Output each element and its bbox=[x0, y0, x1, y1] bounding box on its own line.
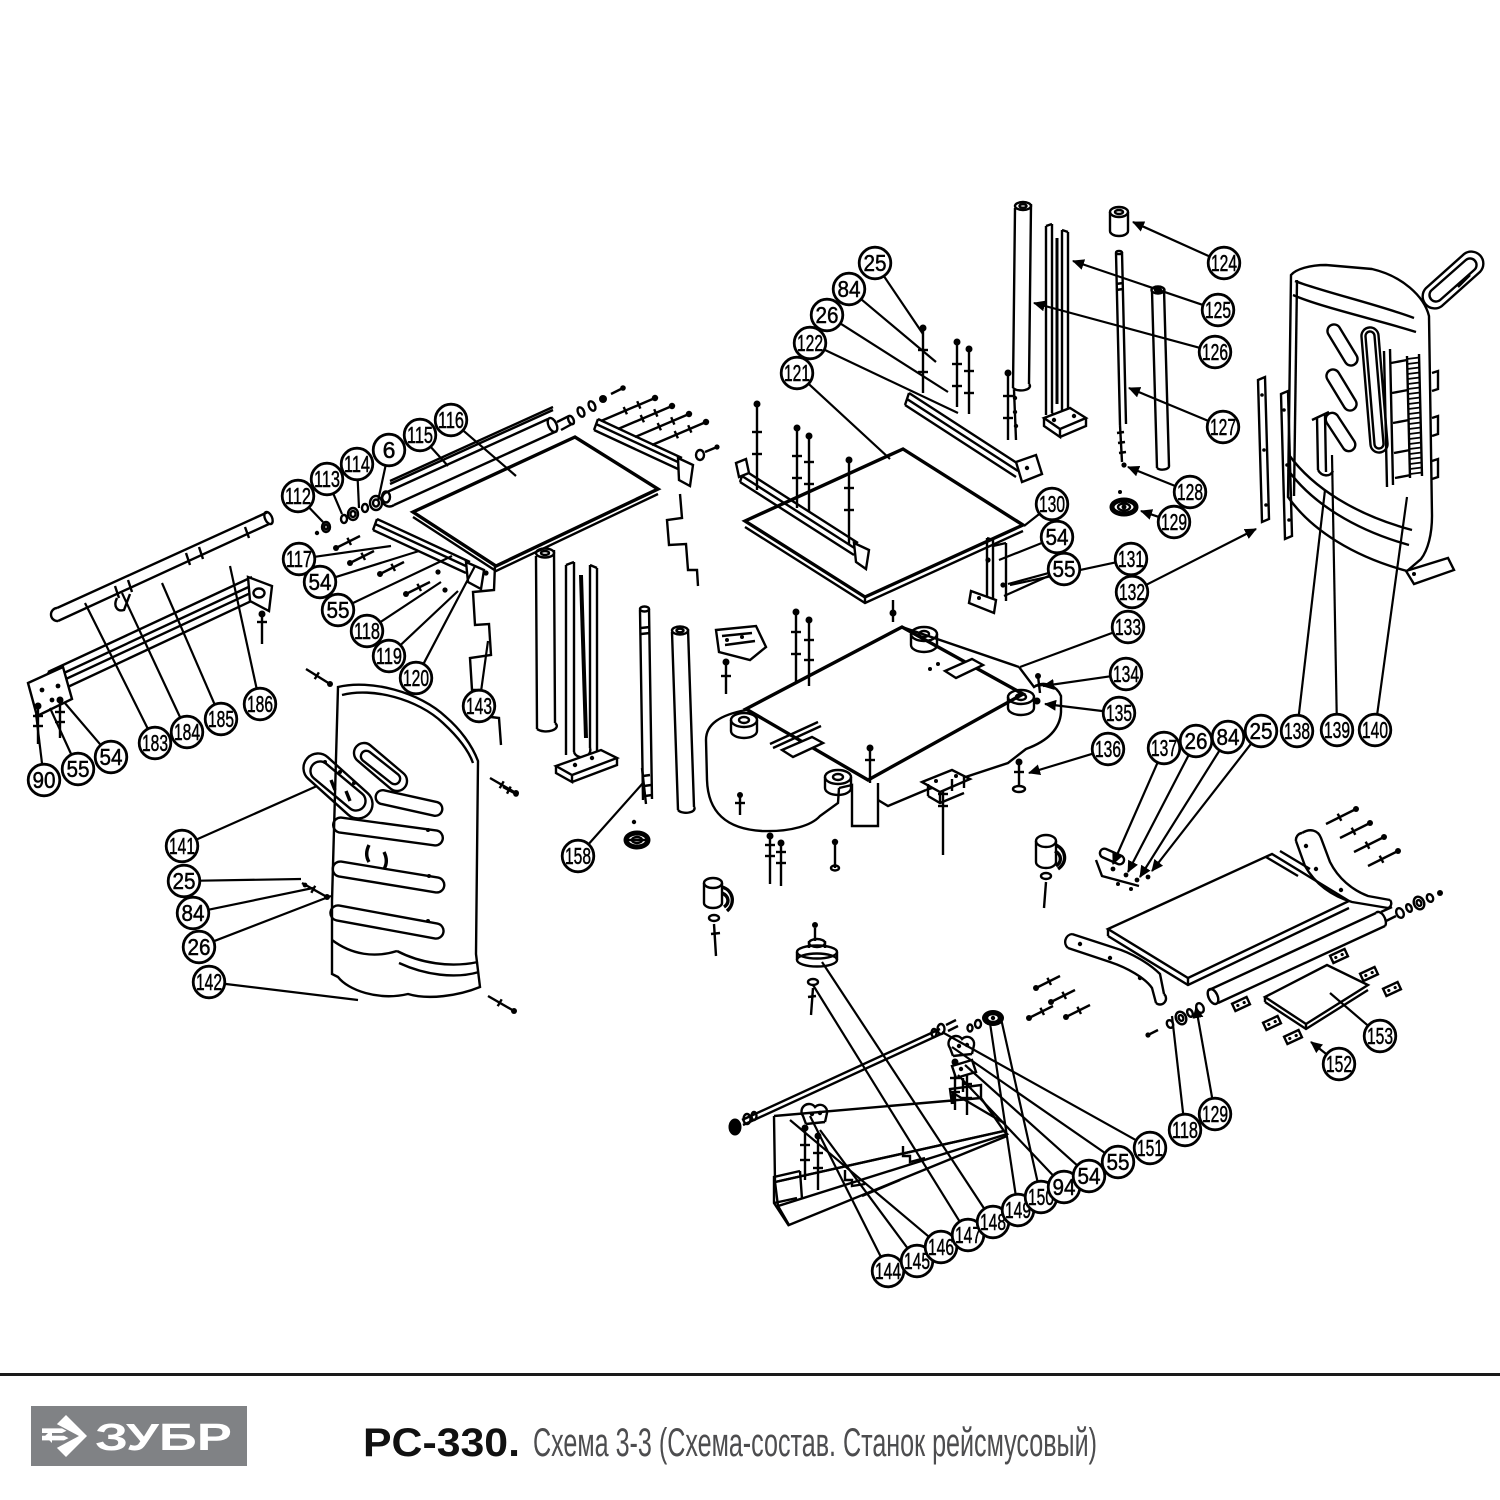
svg-text:84: 84 bbox=[182, 900, 205, 926]
svg-text:128: 128 bbox=[1177, 479, 1203, 505]
svg-text:126: 126 bbox=[1202, 339, 1228, 365]
svg-text:55: 55 bbox=[1053, 556, 1076, 582]
svg-text:120: 120 bbox=[403, 665, 429, 691]
svg-text:54: 54 bbox=[1078, 1163, 1101, 1189]
svg-text:ЗУБР: ЗУБР bbox=[95, 1417, 232, 1459]
svg-text:142: 142 bbox=[196, 969, 222, 995]
svg-text:129: 129 bbox=[1202, 1101, 1228, 1127]
svg-text:90: 90 bbox=[33, 767, 56, 793]
svg-text:186: 186 bbox=[247, 691, 273, 717]
svg-text:141: 141 bbox=[169, 833, 195, 859]
svg-text:184: 184 bbox=[174, 719, 200, 745]
svg-text:183: 183 bbox=[142, 730, 168, 756]
svg-text:Схема 3-3 (Схема-состав. Стано: Схема 3-3 (Схема-состав. Станок рейсмусо… bbox=[533, 1421, 1097, 1465]
svg-text:137: 137 bbox=[1151, 735, 1177, 761]
svg-text:132: 132 bbox=[1119, 579, 1145, 605]
svg-text:124: 124 bbox=[1211, 250, 1237, 276]
svg-text:55: 55 bbox=[327, 597, 350, 623]
svg-text:25: 25 bbox=[864, 250, 887, 276]
svg-text:138: 138 bbox=[1284, 718, 1310, 744]
svg-text:143: 143 bbox=[466, 693, 492, 719]
svg-text:185: 185 bbox=[208, 706, 234, 732]
svg-text:6: 6 bbox=[383, 437, 396, 463]
svg-text:115: 115 bbox=[407, 422, 433, 448]
svg-text:116: 116 bbox=[438, 407, 464, 433]
svg-text:119: 119 bbox=[376, 643, 402, 669]
svg-text:112: 112 bbox=[285, 483, 311, 509]
svg-text:121: 121 bbox=[784, 360, 810, 386]
svg-text:125: 125 bbox=[1205, 297, 1231, 323]
svg-text:55: 55 bbox=[1107, 1149, 1130, 1175]
svg-text:113: 113 bbox=[314, 466, 340, 492]
svg-text:118: 118 bbox=[1172, 1117, 1198, 1143]
svg-text:158: 158 bbox=[565, 843, 591, 869]
svg-text:84: 84 bbox=[1217, 724, 1240, 750]
svg-text:54: 54 bbox=[309, 569, 332, 595]
svg-text:55: 55 bbox=[67, 756, 90, 782]
svg-text:136: 136 bbox=[1095, 736, 1121, 762]
svg-text:130: 130 bbox=[1039, 491, 1065, 517]
svg-text:151: 151 bbox=[1137, 1135, 1163, 1161]
svg-text:146: 146 bbox=[928, 1234, 954, 1260]
svg-text:129: 129 bbox=[1161, 509, 1187, 535]
svg-text:84: 84 bbox=[838, 276, 861, 302]
svg-text:PC-330.: PC-330. bbox=[363, 1421, 520, 1465]
svg-text:26: 26 bbox=[816, 302, 839, 328]
svg-text:54: 54 bbox=[100, 744, 123, 770]
svg-text:25: 25 bbox=[1250, 718, 1273, 744]
svg-text:133: 133 bbox=[1115, 614, 1141, 640]
svg-text:131: 131 bbox=[1118, 546, 1144, 572]
svg-text:135: 135 bbox=[1106, 700, 1132, 726]
svg-text:25: 25 bbox=[173, 868, 196, 894]
svg-text:26: 26 bbox=[1185, 728, 1208, 754]
svg-text:118: 118 bbox=[354, 618, 380, 644]
svg-text:134: 134 bbox=[1113, 661, 1139, 687]
svg-text:139: 139 bbox=[1324, 717, 1350, 743]
svg-text:153: 153 bbox=[1367, 1023, 1393, 1049]
svg-text:122: 122 bbox=[797, 330, 823, 356]
svg-text:54: 54 bbox=[1046, 524, 1069, 550]
svg-text:140: 140 bbox=[1362, 717, 1388, 743]
svg-text:144: 144 bbox=[875, 1258, 901, 1284]
svg-text:114: 114 bbox=[344, 451, 370, 477]
svg-text:127: 127 bbox=[1210, 414, 1236, 440]
svg-text:26: 26 bbox=[188, 934, 211, 960]
svg-text:152: 152 bbox=[1326, 1051, 1352, 1077]
